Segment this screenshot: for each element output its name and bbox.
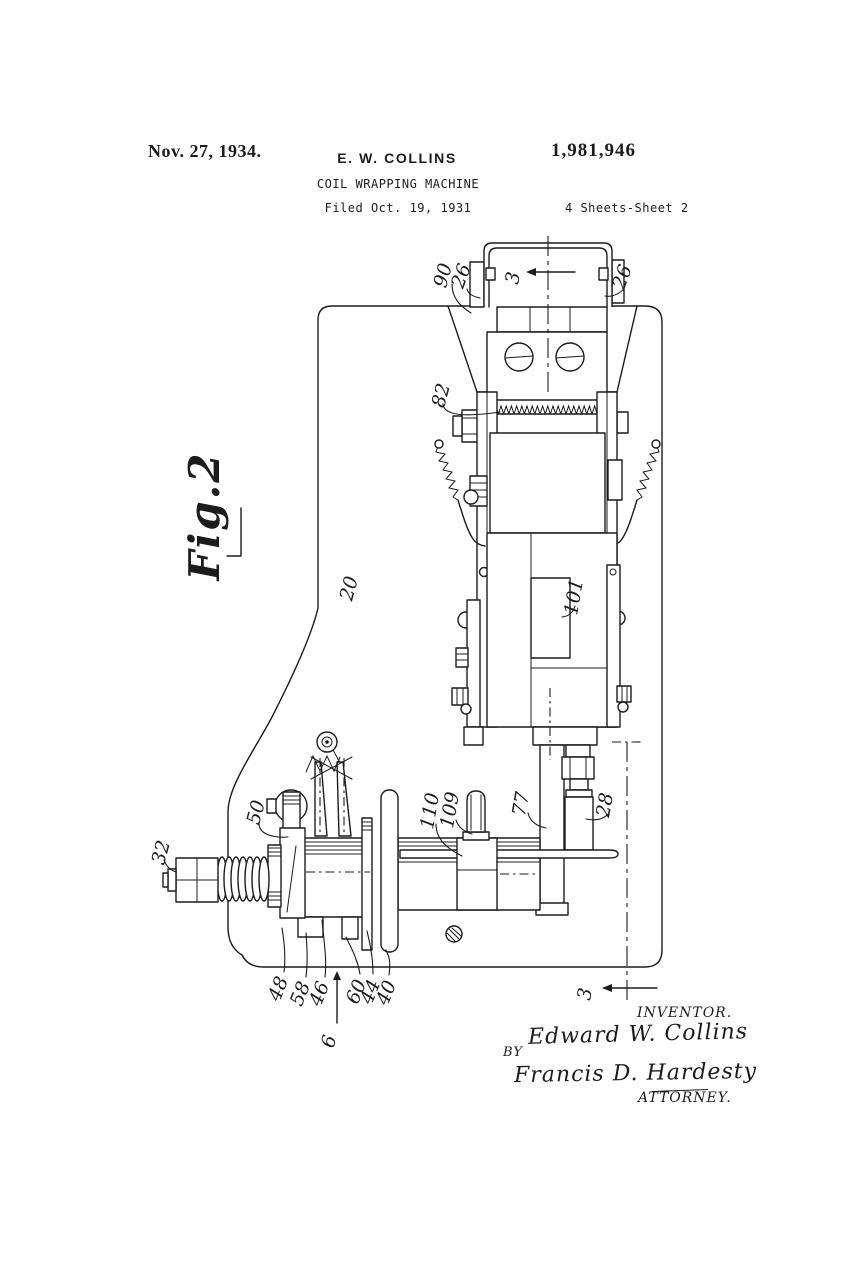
stop-pin [467,791,485,832]
attorney-caption: ATTORNEY. [638,1090,732,1106]
knob [163,858,218,902]
carrier-block [457,838,497,910]
figure-caption: Fig.2 [180,452,241,582]
tension-spring [217,857,269,901]
plate-screw [446,926,462,942]
hanger-bar [540,745,564,905]
attorney-signature: Francis D. Hardesty [514,1059,757,1088]
head-screw-right [556,343,584,371]
figure-name: Fig.2 [180,452,229,582]
inventor-caption: INVENTOR. [637,1005,732,1021]
head-screw-left [505,343,533,371]
flange [381,790,398,952]
plunger [562,745,594,850]
ref-label-28: 28 [592,791,618,820]
wrap-rod [400,850,618,858]
ref-label-32: 32 [147,838,175,867]
ref-label-46: 46 [304,978,334,1010]
ref-label-3-bottom: 3 [573,986,597,1002]
ref-label-6: 6 [317,1033,341,1050]
patent-sheet: Nov. 27, 1934. E. W. COLLINS 1,981,946 C… [0,0,866,1272]
by-label: BY [503,1045,523,1060]
ref-label-77: 77 [508,789,534,818]
